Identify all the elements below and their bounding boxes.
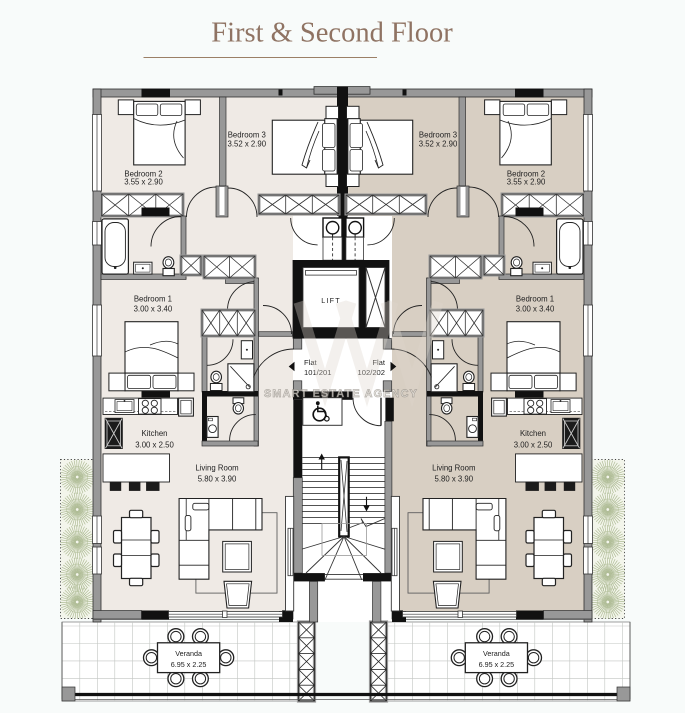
svg-text:3.52 x 2.90: 3.52 x 2.90 bbox=[419, 139, 458, 148]
svg-text:First & Second Floor: First & Second Floor bbox=[211, 18, 453, 49]
svg-text:3.00 x 3.40: 3.00 x 3.40 bbox=[134, 305, 173, 314]
svg-text:5.80 x 3.90: 5.80 x 3.90 bbox=[198, 474, 237, 483]
svg-text:Kitchen: Kitchen bbox=[520, 429, 546, 438]
svg-text:3.52 x 2.90: 3.52 x 2.90 bbox=[228, 139, 267, 148]
svg-text:Living Room: Living Room bbox=[432, 464, 475, 473]
svg-text:Living Room: Living Room bbox=[195, 464, 238, 473]
svg-text:Bedroom 3: Bedroom 3 bbox=[228, 130, 266, 139]
svg-text:6.95 x 2.25: 6.95 x 2.25 bbox=[479, 660, 515, 669]
svg-text:Kitchen: Kitchen bbox=[141, 429, 167, 438]
svg-text:Bedroom 1: Bedroom 1 bbox=[516, 295, 554, 304]
svg-text:3.55 x 2.90: 3.55 x 2.90 bbox=[124, 177, 163, 186]
svg-text:3.55 x 2.90: 3.55 x 2.90 bbox=[507, 177, 546, 186]
svg-text:3.00 x 2.50: 3.00 x 2.50 bbox=[514, 440, 553, 449]
svg-text:6.95 x 2.25: 6.95 x 2.25 bbox=[171, 660, 207, 669]
svg-text:Bedroom 3: Bedroom 3 bbox=[419, 130, 457, 139]
svg-text:Bedroom 1: Bedroom 1 bbox=[134, 295, 172, 304]
svg-text:5.80 x 3.90: 5.80 x 3.90 bbox=[435, 474, 474, 483]
svg-text:SMART ESTATE AGENCY: SMART ESTATE AGENCY bbox=[264, 388, 418, 400]
svg-text:3.00 x 2.50: 3.00 x 2.50 bbox=[135, 440, 174, 449]
svg-text:Veranda: Veranda bbox=[175, 649, 202, 658]
svg-text:3.00 x 3.40: 3.00 x 3.40 bbox=[516, 305, 555, 314]
svg-text:Veranda: Veranda bbox=[483, 649, 510, 658]
